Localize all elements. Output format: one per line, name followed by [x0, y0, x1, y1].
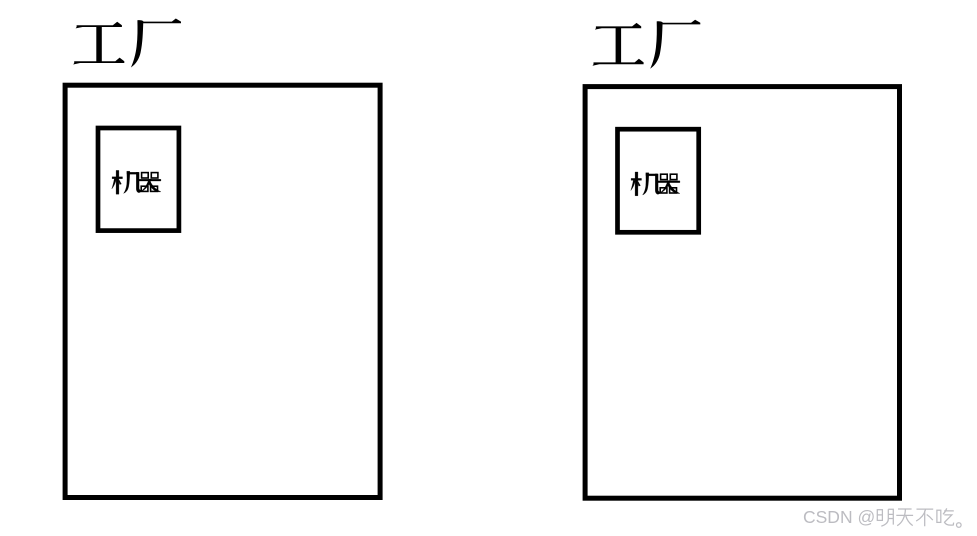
svg-text:CSDN @: CSDN @ — [803, 507, 875, 527]
